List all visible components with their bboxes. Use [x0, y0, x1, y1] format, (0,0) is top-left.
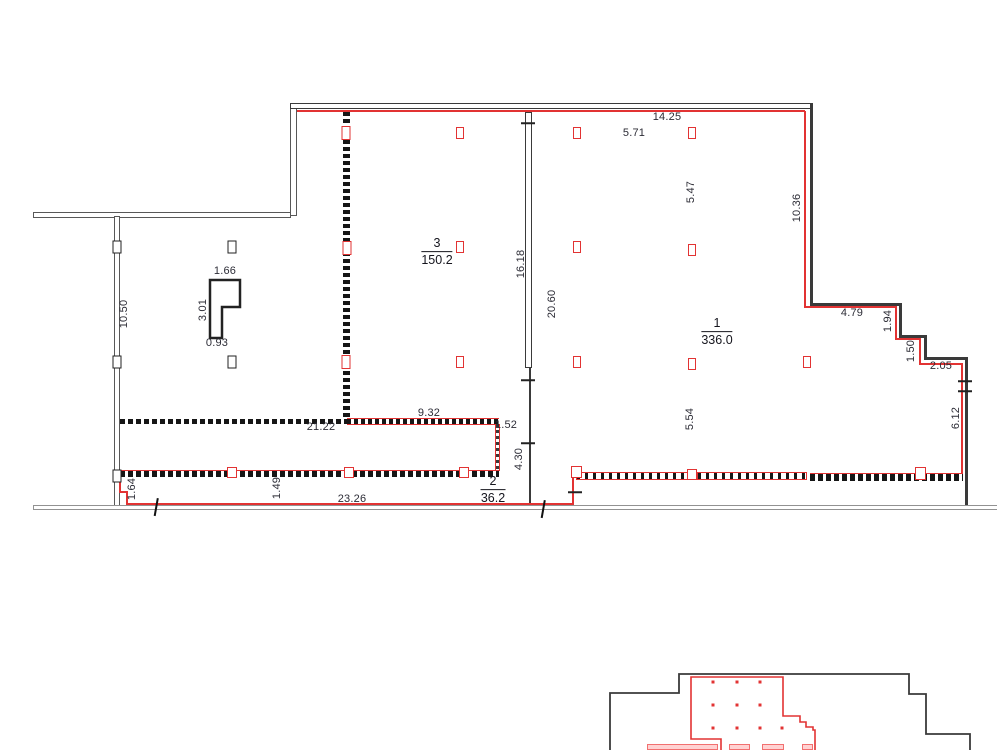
l-shaped-core: [210, 280, 240, 338]
dimension-label: 6.12: [950, 407, 962, 429]
key-plan-column-dot: [759, 727, 762, 730]
dimension-tick: [958, 380, 972, 382]
floor-plan-canvas: 14.255.715.4710.364.791.941.502.056.125.…: [0, 0, 1000, 750]
room-label: 1336.0: [701, 316, 732, 348]
dimension-tick: [568, 491, 582, 493]
room-area: 336.0: [701, 333, 732, 348]
room-area: 150.2: [421, 253, 452, 268]
key-plan-highlight: [691, 677, 815, 750]
dimension-label: 1.94: [882, 310, 894, 332]
column-marker: [113, 470, 122, 483]
dimension-label: 2.05: [930, 360, 952, 372]
dimension-label: 14.25: [653, 111, 682, 123]
key-plan-outline: [610, 674, 970, 750]
column-marker: [342, 355, 351, 369]
dimension-label: 1.66: [214, 265, 236, 277]
dimension-label: 5.71: [623, 127, 645, 139]
dimension-label: 1.49: [271, 477, 283, 499]
dimension-label: 9.32: [418, 407, 440, 419]
dimension-tick: [521, 442, 535, 444]
column-marker: [456, 127, 464, 139]
key-plan-column-dot: [736, 704, 739, 707]
column-marker: [228, 356, 237, 369]
dimension-label: 1.50: [905, 340, 917, 362]
column-marker: [228, 241, 237, 254]
room-label: 236.2: [481, 474, 506, 506]
key-plan-column-dot: [759, 704, 762, 707]
dimension-tick: [521, 379, 535, 381]
room-number: 3: [421, 236, 452, 252]
key-plan-column-dot: [736, 727, 739, 730]
key-plan-column-dot: [712, 681, 715, 684]
column-marker: [456, 241, 464, 253]
dimension-label: 1.52: [495, 419, 517, 431]
key-plan-column-dot: [759, 681, 762, 684]
column-marker: [113, 356, 122, 369]
dimension-label: 3.01: [197, 299, 209, 321]
room-number: 2: [481, 474, 506, 490]
dimension-label: 21.22: [307, 421, 336, 433]
column-marker: [573, 127, 581, 139]
key-plan-column-dot: [736, 681, 739, 684]
dimension-label: 20.60: [546, 290, 558, 319]
dimension-tick: [958, 390, 972, 392]
column-marker: [573, 241, 581, 253]
column-marker: [688, 358, 696, 370]
drawing-overlay: [0, 0, 1000, 750]
room-label: 3150.2: [421, 236, 452, 268]
column-marker: [573, 356, 581, 368]
column-marker: [688, 244, 696, 256]
dimension-label: 5.47: [685, 181, 697, 203]
dimension-label: 23.26: [338, 493, 367, 505]
key-plan-wall-segment: [729, 744, 750, 750]
key-plan-wall-segment: [802, 744, 813, 750]
dimension-label: 10.50: [118, 300, 130, 329]
key-plan-column-dot: [781, 727, 784, 730]
column-marker: [343, 241, 352, 255]
column-marker: [342, 126, 351, 140]
dimension-label: 0.93: [206, 337, 228, 349]
dimension-label: 16.18: [515, 250, 527, 279]
key-plan-column-dot: [712, 727, 715, 730]
room-number: 1: [701, 316, 732, 332]
dimension-label: 5.54: [684, 408, 696, 430]
dimension-label: 4.30: [513, 448, 525, 470]
key-plan-wall-segment: [647, 744, 718, 750]
column-marker: [113, 241, 122, 254]
key-plan-column-dot: [712, 704, 715, 707]
column-marker: [456, 356, 464, 368]
key-plan-wall-segment: [762, 744, 784, 750]
dimension-label: 1.64: [126, 478, 138, 500]
dimension-tick: [521, 122, 535, 124]
room-area: 36.2: [481, 491, 506, 506]
column-marker: [688, 127, 696, 139]
column-marker: [803, 356, 811, 368]
dimension-label: 10.36: [791, 194, 803, 223]
dimension-label: 4.79: [841, 307, 863, 319]
